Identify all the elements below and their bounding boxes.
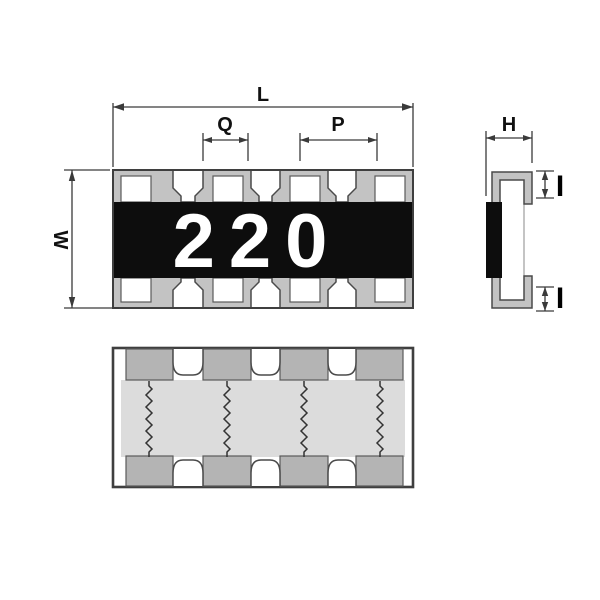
bottom-view-pad bbox=[356, 349, 403, 380]
arrowhead-left bbox=[203, 137, 212, 143]
pad-window bbox=[375, 278, 405, 302]
bottom-view-notch bbox=[251, 349, 280, 375]
arrowhead-right bbox=[368, 137, 377, 143]
dimension-Q: Q bbox=[203, 114, 248, 161]
dim-label-terminal-top: I bbox=[556, 170, 564, 203]
arrowhead-up bbox=[542, 171, 548, 180]
arrowhead-up bbox=[542, 287, 548, 296]
dimension-P: P bbox=[300, 114, 377, 161]
dim-label-terminal-bottom: I bbox=[556, 282, 564, 315]
pad-window bbox=[121, 176, 151, 202]
arrowhead-top bbox=[69, 170, 75, 181]
side-resistor-layer bbox=[486, 202, 502, 278]
dimension-terminal-bottom: I bbox=[536, 282, 564, 315]
dim-label-W: W bbox=[49, 231, 71, 250]
bottom-view-pad bbox=[280, 456, 328, 486]
bottom-view-notch bbox=[173, 349, 203, 375]
bottom-view-pad bbox=[203, 456, 251, 486]
dimension-W: W bbox=[49, 170, 119, 308]
arrowhead-left bbox=[486, 135, 495, 141]
bottom-view-pad bbox=[126, 456, 173, 486]
bottom-view-pad bbox=[356, 456, 403, 486]
arrowhead-right bbox=[239, 137, 248, 143]
bottom-view-notch bbox=[328, 460, 356, 486]
side-terminal-bottom bbox=[492, 276, 532, 308]
dim-label-Q: Q bbox=[217, 114, 233, 136]
bottom-view bbox=[113, 348, 413, 487]
arrowhead-left bbox=[113, 103, 124, 111]
arrowhead-right bbox=[523, 135, 532, 141]
dim-label-P: P bbox=[331, 114, 344, 136]
dimension-terminal-top: I bbox=[536, 170, 564, 203]
bottom-view-notch bbox=[328, 349, 356, 375]
dim-label-L: L bbox=[257, 84, 269, 106]
bottom-view-pad bbox=[280, 349, 328, 380]
dimension-L: L bbox=[113, 84, 413, 167]
side-terminal-top bbox=[492, 172, 532, 204]
arrowhead-down bbox=[542, 302, 548, 311]
arrowhead-left bbox=[300, 137, 309, 143]
substrate-underside bbox=[121, 380, 405, 457]
side-view bbox=[486, 172, 532, 308]
arrowhead-bottom bbox=[69, 297, 75, 308]
arrowhead-down bbox=[542, 189, 548, 198]
bottom-view-pad bbox=[203, 349, 251, 380]
diagram-canvas: 220 L Q P W bbox=[0, 0, 600, 600]
bottom-view-notch bbox=[251, 460, 280, 486]
pad-window bbox=[121, 278, 151, 302]
bottom-view-notch bbox=[173, 460, 203, 486]
pad-window bbox=[375, 176, 405, 202]
arrowhead-right bbox=[402, 103, 413, 111]
bottom-view-pad bbox=[126, 349, 173, 380]
resistor-array-drawing: 220 L Q P W bbox=[0, 0, 600, 600]
top-view: 220 bbox=[113, 170, 413, 308]
dim-label-H: H bbox=[502, 114, 516, 136]
resistance-marking: 220 bbox=[173, 199, 342, 284]
